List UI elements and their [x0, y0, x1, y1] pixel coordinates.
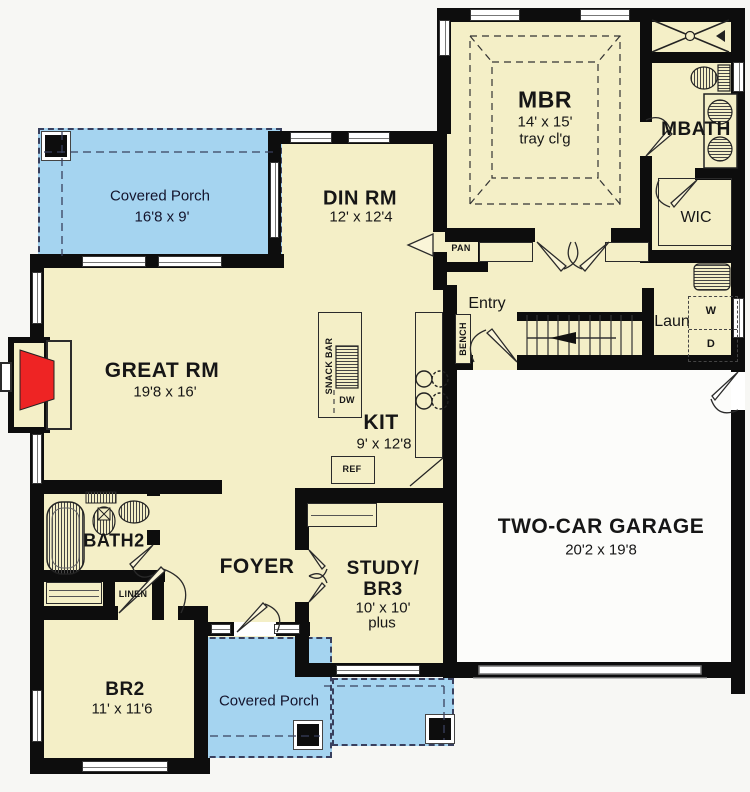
- room-dims-mbr: 14' x 15': [518, 114, 573, 131]
- mbr-double-door: [537, 242, 609, 271]
- room-dims-br2: 11' x 11'6: [91, 701, 152, 718]
- fixture-label-washer: W: [706, 305, 717, 317]
- study-french-doors: [309, 550, 327, 602]
- room-label-porch-top: Covered Porch: [110, 188, 210, 205]
- plan-linework: [0, 0, 750, 792]
- room-dims-din: 12' x 12'4: [329, 209, 392, 226]
- fixture-label-ref: REF: [343, 464, 362, 474]
- fixture-label-bench: BENCH: [458, 322, 468, 356]
- fixture-label-dryer: D: [707, 338, 715, 350]
- room-label-study: STUDY/: [347, 558, 420, 580]
- room-label-foyer: FOYER: [220, 555, 295, 579]
- room-dims-garage2: 20'2 x 19'8: [565, 542, 637, 559]
- room-label-br3: BR3: [363, 579, 403, 601]
- garage-door: [473, 666, 707, 678]
- room-label-great: GREAT RM: [105, 359, 219, 383]
- room-label-porch-bottom: Covered Porch: [219, 693, 319, 710]
- room-label-kit: KIT: [363, 411, 398, 435]
- room-dims-kit: 9' x 12'8: [357, 436, 412, 453]
- laundry-sink-fixture: [694, 264, 730, 290]
- bath2-counter-fixture: [86, 492, 116, 503]
- room-note-mbr: tray cl'g: [519, 131, 570, 148]
- garage-side-door: [711, 372, 738, 413]
- sink-fixture: [119, 501, 149, 523]
- toilet-fixture: [691, 65, 730, 91]
- stair-direction-arrow: [550, 332, 576, 344]
- fixture-label-pan: PAN: [451, 243, 470, 253]
- fixture-label-snack-bar: SNACK BAR: [324, 338, 334, 395]
- room-dims-porch-top: 16'8 x 9': [135, 209, 190, 226]
- room-label-br2: BR2: [105, 679, 145, 701]
- room-dims-great: 19'8 x 16': [133, 384, 196, 401]
- room-label-bath2: BATH2: [83, 531, 144, 552]
- fireplace-firebox: [20, 350, 54, 410]
- room-label-laun: Laun: [654, 313, 690, 331]
- floor-plan: MBR 14' x 15' tray cl'g MBATH WIC Covere…: [0, 0, 750, 792]
- dishwasher-fixture: [336, 346, 358, 388]
- room-label-wic: WIC: [680, 209, 711, 227]
- wic-door: [656, 180, 697, 207]
- room-label-mbr: MBR: [518, 87, 572, 114]
- room-label-mbath: MBATH: [661, 119, 731, 141]
- pantry-door: [408, 234, 433, 256]
- front-door: [237, 603, 280, 632]
- tub-fixture: [47, 502, 84, 574]
- room-label-garage: TWO-CAR GARAGE: [498, 515, 704, 539]
- room-label-entry: Entry: [468, 295, 505, 313]
- cooktop-fixture: [410, 371, 448, 486]
- room-note-study: plus: [368, 615, 396, 632]
- fixture-label-dw: DW: [339, 395, 355, 405]
- room-label-din: DIN RM: [323, 188, 397, 211]
- entry-garage-door: [470, 329, 517, 362]
- shower-fixture: [652, 20, 729, 52]
- stairs: [527, 315, 632, 355]
- fixture-label-linen: LINEN: [119, 589, 148, 599]
